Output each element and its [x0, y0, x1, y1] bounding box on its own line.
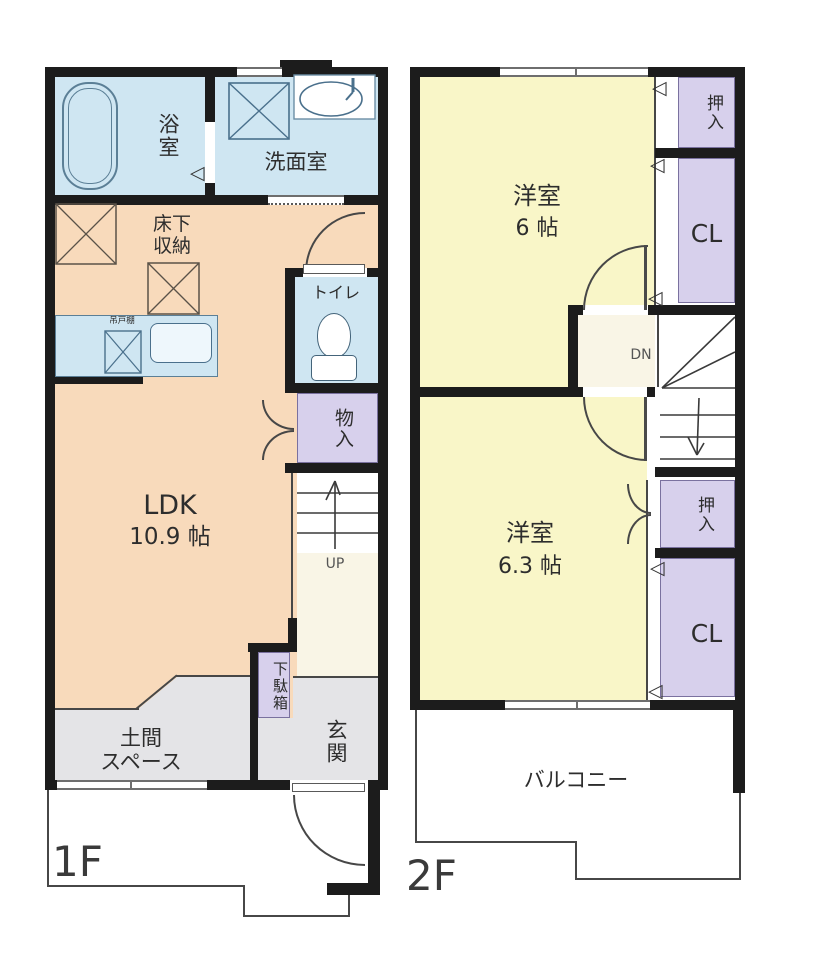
toilet-bowl — [317, 313, 351, 358]
toilet-label: トイレ — [301, 284, 371, 304]
underfloor-label-line1: 床下 — [153, 213, 191, 235]
hanging-cupboard-label: 吊戸棚 — [100, 317, 144, 327]
hall-left-wall — [568, 305, 578, 397]
balcony-label: バルコニー — [500, 768, 652, 794]
f2-wall-left — [410, 67, 420, 710]
doma-label: 土間 スペース — [85, 726, 197, 780]
kitchen-counter: 吊戸棚 — [55, 315, 218, 377]
wash-ldk-wall-right — [344, 195, 378, 205]
bedroom1-window — [500, 67, 648, 77]
f1-wall-left — [45, 67, 55, 790]
balcony-right-wall — [733, 710, 745, 793]
closet2-label: CL — [678, 620, 735, 648]
washroom-window — [237, 67, 282, 77]
oshiire1-folding-door-icon: ◁ — [652, 79, 667, 98]
oshiire1-bottom-wall — [655, 148, 735, 158]
f2-wall-right — [735, 67, 745, 710]
underfloor-label: 床下 収納 — [141, 214, 203, 264]
floor1-label: 1F — [52, 838, 122, 886]
bedroom2-size-label: 6.3 帖 — [470, 554, 590, 582]
underfloor-storage-box-2 — [147, 262, 200, 315]
bedroom2-window-tick — [576, 701, 578, 709]
doma-step-line-2 — [176, 675, 252, 677]
hall-wall-stub — [288, 618, 297, 645]
agarikamachi-line — [293, 676, 378, 678]
balcony-step-line — [575, 841, 577, 880]
underfloor-label-line2: 収納 — [153, 235, 191, 257]
entrance-area-under-shoebox — [258, 718, 293, 780]
doma-window — [57, 780, 207, 790]
doma-entrance-wall — [250, 652, 258, 780]
floorplan-canvas: ◁ — [0, 0, 822, 960]
stairs-bottom-wall — [655, 467, 735, 477]
bedroom1-label: 洋室 — [487, 183, 587, 213]
bath-label: 浴室 — [148, 100, 178, 172]
shoe-cabinet-label: 下駄箱 — [261, 655, 287, 717]
bedroom2-door-opening — [583, 387, 647, 397]
bedroom2-label: 洋室 — [480, 520, 580, 550]
closet-front-line-1 — [654, 77, 656, 305]
ldk-hall-boundary — [291, 473, 293, 620]
kitchen-sink — [150, 323, 212, 363]
washroom-sliding-door — [268, 195, 344, 205]
bedroom2-door-leaf — [644, 397, 647, 461]
oshiire2-label: 押入 — [684, 484, 712, 546]
stairs-1f — [297, 473, 378, 553]
toilet-top-wall-right — [367, 268, 378, 277]
stairs-up-label: UP — [318, 556, 352, 572]
closet2-folding-door-icon-bottom: ◁ — [648, 682, 663, 701]
bath-folding-door-icon: ◁ — [190, 164, 205, 183]
entrance-door-leaf — [292, 783, 365, 792]
underfloor-storage-box-1 — [55, 203, 117, 265]
balcony-right-line — [739, 793, 741, 880]
doma-label-line1: 土間 — [120, 726, 162, 750]
porch-step-line — [243, 885, 245, 917]
bath-wash-wall-lower — [205, 183, 215, 195]
stairs-dn-label: DN — [624, 347, 658, 363]
entrance-door-arc — [293, 795, 365, 866]
porch-left-line — [47, 790, 49, 887]
toilet-storage-wall — [285, 383, 378, 393]
doma-label-line2: スペース — [100, 750, 181, 774]
toilet-tank — [311, 355, 357, 381]
porch-bottom-line-2 — [243, 915, 350, 917]
f1-wall-right — [378, 67, 388, 790]
closet-front-strip-1 — [656, 77, 678, 305]
closet1-folding-door-icon-bottom: ◁ — [648, 289, 663, 308]
toilet-door-leaf — [303, 264, 365, 274]
balcony-bottom-line-2 — [575, 878, 741, 880]
storage-label: 物入 — [322, 398, 352, 460]
floor2-label: 2F — [406, 852, 480, 900]
bedroom-divider-wall — [420, 387, 583, 397]
bathtub — [62, 82, 118, 190]
ldk-label: LDK — [120, 490, 220, 520]
stairs-2f — [658, 315, 735, 467]
porch-right-line — [348, 893, 350, 917]
doma-window-tick — [130, 781, 132, 789]
porch-wall-vertical — [368, 790, 380, 895]
closet1-label: CL — [678, 220, 735, 248]
closet2-folding-door-icon-top: ◁ — [650, 559, 665, 578]
closet1-folding-door-icon-top: ◁ — [650, 156, 665, 175]
hall-bottom-wall-right — [647, 387, 655, 397]
kitchen-hood — [104, 330, 142, 374]
doma-step-line — [53, 708, 139, 710]
oshiire1-label: 押入 — [693, 82, 721, 144]
balcony-bottom-line-1 — [415, 841, 577, 843]
bedroom1-door-leaf — [644, 245, 647, 310]
porch-wall-horizontal — [327, 883, 380, 895]
bedroom1-window-tick — [575, 68, 577, 76]
entrance-label: 玄関 — [316, 708, 346, 776]
toilet-left-wall — [285, 268, 295, 390]
storage-stairs-wall — [285, 463, 378, 473]
oshiire2-bottom-wall — [655, 548, 735, 558]
washroom-label: 洗面室 — [240, 150, 352, 176]
bath-wash-wall-upper — [205, 77, 215, 122]
f1-wall-sill — [280, 60, 332, 68]
bedroom1-size-label: 6 帖 — [487, 216, 587, 244]
balcony-left-line — [415, 710, 417, 843]
washbasin — [293, 74, 376, 120]
ldk-size-label: 10.9 帖 — [110, 524, 230, 552]
bathtub-inner — [68, 88, 112, 184]
shoebox-top-wall — [248, 643, 297, 652]
washing-machine-pan — [228, 82, 290, 140]
